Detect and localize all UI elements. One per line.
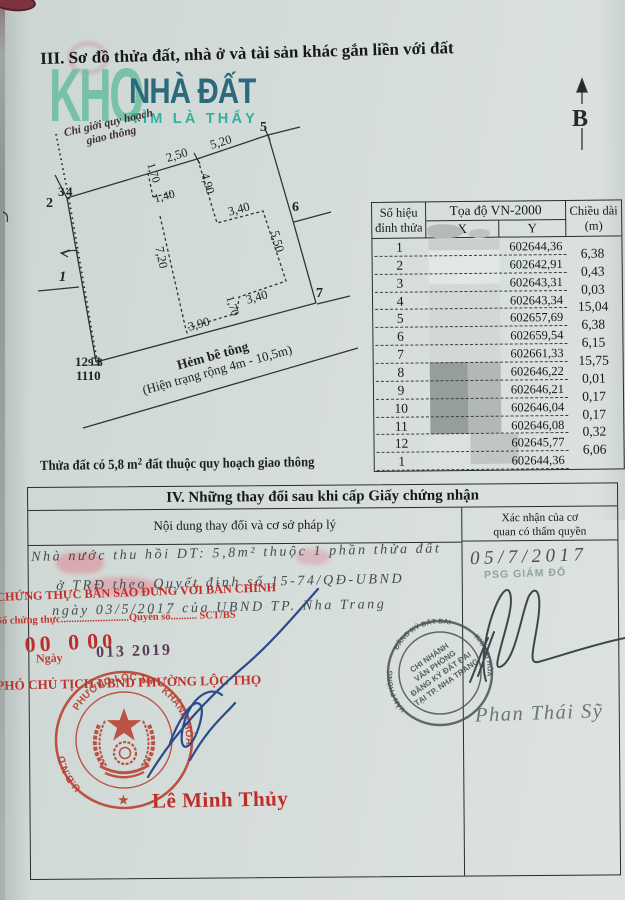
svg-text:U.B.N.D: U.B.N.D bbox=[57, 755, 84, 794]
svg-text:B: B bbox=[572, 106, 588, 132]
svg-text:★: ★ bbox=[118, 793, 129, 807]
